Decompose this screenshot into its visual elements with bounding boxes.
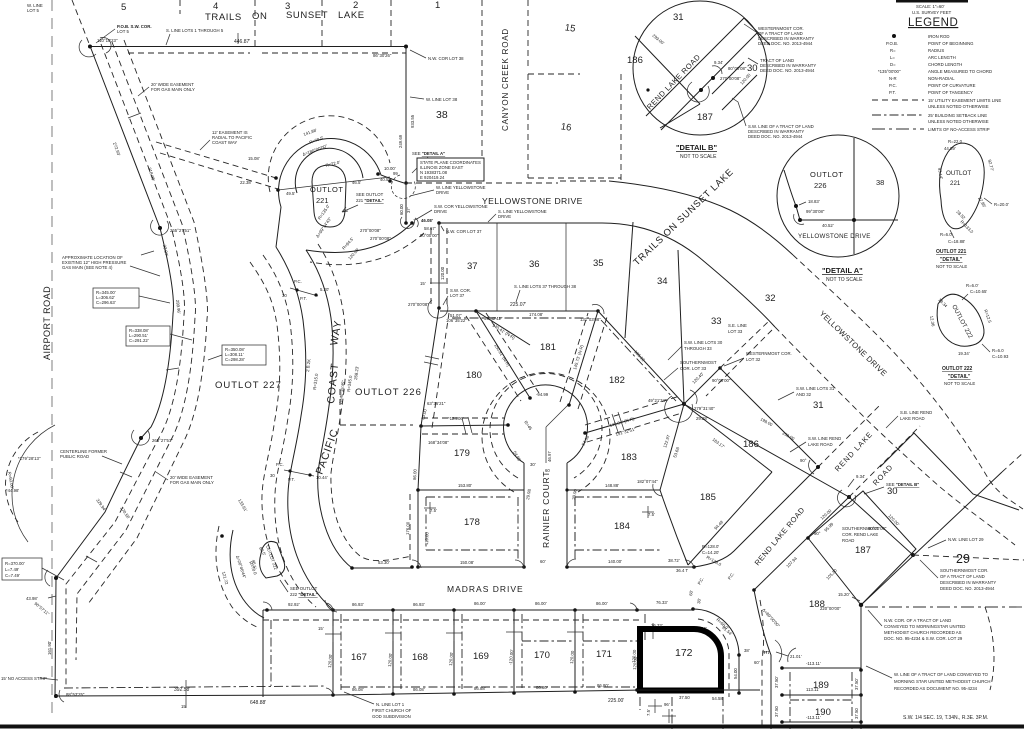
svg-text:P.O.B.: P.O.B. [886, 41, 898, 46]
svg-text:"DETAIL": "DETAIL" [940, 257, 963, 263]
svg-text:R=6.0: R=6.0 [992, 348, 1004, 353]
svg-text:40.52': 40.52' [380, 177, 392, 182]
svg-text:86.08': 86.08' [413, 687, 425, 692]
svg-text:15': 15' [318, 626, 324, 631]
svg-text:R=: R= [890, 48, 896, 53]
svg-text:OUTLOT 222: OUTLOT 222 [942, 366, 973, 372]
svg-text:86°30'26": 86°30'26" [373, 53, 392, 58]
svg-text:221 "DETAIL": 221 "DETAIL" [356, 198, 384, 203]
svg-text:30: 30 [887, 486, 898, 497]
svg-text:446.87': 446.87' [234, 39, 250, 45]
svg-text:S.W. LINE REND: S.W. LINE REND [808, 436, 841, 441]
svg-text:DRIVE: DRIVE [436, 190, 449, 195]
svg-text:FIRST CHURCH OF: FIRST CHURCH OF [372, 708, 412, 713]
svg-text:RADIUS: RADIUS [928, 48, 944, 53]
svg-text:46.97: 46.97 [547, 451, 552, 462]
svg-text:5.20': 5.20' [320, 287, 329, 292]
svg-text:OF A TRACT OF LAND: OF A TRACT OF LAND [940, 574, 985, 579]
svg-text:CHORD LENGTH: CHORD LENGTH [928, 62, 962, 67]
svg-text:86.93': 86.93' [413, 602, 425, 607]
svg-text:172: 172 [675, 647, 693, 659]
svg-text:RAINIER COURT: RAINIER COURT [541, 471, 551, 548]
svg-text:184: 184 [614, 521, 630, 532]
svg-text:392.58': 392.58' [174, 687, 190, 693]
svg-text:99°30'08": 99°30'08" [806, 209, 825, 214]
svg-text:P.C.: P.C. [889, 83, 897, 88]
svg-text:AND 32: AND 32 [796, 392, 812, 397]
svg-text:OUTLOT: OUTLOT [946, 170, 971, 177]
svg-text:92.92': 92.92' [288, 602, 300, 607]
svg-text:37.50: 37.50 [774, 706, 779, 717]
svg-text:R=128.0': R=128.0' [702, 544, 719, 549]
svg-text:225.00': 225.00' [608, 698, 624, 704]
svg-text:S.W. LINE LOTS 30: S.W. LINE LOTS 30 [684, 340, 723, 345]
svg-text:NOT TO SCALE: NOT TO SCALE [936, 264, 967, 269]
svg-text:N. LINE LOT 1: N. LINE LOT 1 [376, 702, 405, 707]
svg-text:60': 60' [754, 660, 760, 665]
svg-text:31: 31 [813, 400, 824, 411]
svg-text:*44.98': *44.98' [6, 488, 19, 493]
svg-text:179: 179 [454, 448, 470, 459]
svg-text:S.W. 1/4 SEC. 19, T.34N., R.3E: S.W. 1/4 SEC. 19, T.34N., R.3E. 3P.M. [903, 715, 988, 721]
svg-text:167: 167 [351, 652, 367, 663]
svg-text:N-R: N-R [889, 76, 897, 81]
svg-text:L=7.49': L=7.49' [5, 567, 19, 572]
svg-text:C=14.20': C=14.20' [702, 550, 719, 555]
svg-text:N.W. COR LOT 38: N.W. COR LOT 38 [428, 56, 464, 61]
svg-text:"DETAIL A": "DETAIL A" [822, 266, 863, 275]
svg-text:SOUTHERNMOST: SOUTHERNMOST [842, 526, 879, 531]
svg-text:181: 181 [540, 342, 556, 353]
svg-text:W. LINE OF A TRACT OF LAND CON: W. LINE OF A TRACT OF LAND CONVEYED TO [894, 672, 989, 677]
svg-text:ROAD: ROAD [842, 538, 854, 543]
svg-text:THROUGH 33: THROUGH 33 [684, 346, 712, 351]
svg-text:SOUTHERNMOST COR.: SOUTHERNMOST COR. [940, 568, 988, 573]
svg-text:C=10.65': C=10.65' [970, 289, 987, 294]
svg-text:37.50': 37.50' [854, 678, 859, 690]
svg-text:RECORDED AS DOCUMENT NO. 95-42: RECORDED AS DOCUMENT NO. 95-4234 [894, 686, 978, 691]
svg-text:36: 36 [529, 259, 540, 270]
svg-text:15': 15' [420, 281, 426, 286]
svg-text:86.08': 86.08' [352, 687, 364, 692]
svg-text:ANGLE MEASURED TO CHORD: ANGLE MEASURED TO CHORD [928, 69, 992, 74]
svg-text:YELLOWSTONE DRIVE: YELLOWSTONE DRIVE [482, 196, 583, 206]
svg-text:NOT TO SCALE: NOT TO SCALE [826, 277, 863, 283]
svg-text:113.11': 113.11' [806, 687, 820, 692]
svg-text:53.30': 53.30' [378, 560, 390, 565]
svg-text:TRAILS: TRAILS [205, 12, 242, 23]
svg-text:186: 186 [627, 55, 643, 66]
svg-text:P.C.: P.C. [276, 462, 284, 467]
svg-text:99: 99 [393, 171, 398, 176]
svg-text:7.5': 7.5' [648, 512, 655, 517]
svg-text:15.20': 15.20' [838, 592, 850, 597]
svg-text:90°00'00": 90°00'00" [712, 378, 731, 383]
svg-text:NOT TO SCALE: NOT TO SCALE [944, 381, 975, 386]
svg-text:P.T.: P.T. [889, 90, 896, 95]
svg-text:185: 185 [700, 492, 716, 503]
svg-text:171: 171 [596, 649, 612, 660]
svg-text:S.E. LINE: S.E. LINE [728, 323, 747, 328]
svg-text:170: 170 [534, 650, 550, 661]
svg-text:86.93': 86.93' [352, 602, 364, 607]
svg-text:40.52': 40.52' [822, 223, 834, 228]
svg-text:COR. REND LAKE: COR. REND LAKE [842, 532, 878, 537]
svg-text:279°31'40": 279°31'40" [694, 406, 715, 411]
svg-text:LOT 32: LOT 32 [746, 357, 761, 362]
svg-text:SCALE: 1"=60': SCALE: 1"=60' [916, 4, 945, 9]
svg-text:MORNING STAR UNITED METHODIST: MORNING STAR UNITED METHODIST CHURCH [894, 679, 991, 684]
svg-text:METHODIST CHURCH RECORDED AS: METHODIST CHURCH RECORDED AS [884, 630, 962, 635]
svg-text:C=291.22': C=291.22' [129, 338, 149, 343]
svg-text:221: 221 [950, 180, 961, 187]
svg-text:W. LINE LOT 38: W. LINE LOT 38 [426, 97, 458, 102]
svg-text:N.W. COR LOT 37: N.W. COR LOT 37 [446, 229, 482, 234]
svg-text:DRIVE: DRIVE [498, 214, 511, 219]
svg-text:AIRPORT ROAD: AIRPORT ROAD [42, 286, 52, 360]
svg-text:OUTLOT 226: OUTLOT 226 [355, 387, 422, 398]
svg-text:120.00: 120.00 [440, 266, 445, 280]
svg-text:R=370.00': R=370.00' [5, 561, 25, 566]
svg-text:22.38': 22.38' [240, 180, 252, 185]
svg-text:86.00': 86.00' [596, 601, 608, 606]
svg-text:90°: 90° [800, 458, 807, 463]
svg-text:U.S. SURVEY FEET: U.S. SURVEY FEET [912, 10, 952, 15]
svg-text:CONVEYED TO MORNINGSTAR UNITED: CONVEYED TO MORNINGSTAR UNITED [884, 624, 965, 629]
svg-text:30: 30 [747, 63, 758, 74]
svg-text:C=10.93: C=10.93 [992, 354, 1009, 359]
svg-text:25' BUILDING SETBACK LINE: 25' BUILDING SETBACK LINE [928, 113, 987, 118]
svg-text:S. LINE LOTS 37 THROUGH 38: S. LINE LOTS 37 THROUGH 38 [514, 284, 577, 289]
svg-text:-113.11': -113.11' [806, 661, 821, 666]
svg-text:15' NO ACCESS STRIP: 15' NO ACCESS STRIP [1, 676, 47, 681]
svg-text:15.08': 15.08' [248, 156, 260, 161]
svg-text:169: 169 [473, 651, 489, 662]
svg-text:IRON ROD: IRON ROD [928, 34, 950, 39]
svg-text:86.00': 86.00' [535, 601, 547, 606]
svg-text:182°07'44": 182°07'44" [637, 479, 658, 484]
svg-text:P.T.: P.T. [300, 296, 307, 301]
svg-text:LOT 5: LOT 5 [117, 29, 129, 34]
svg-text:60': 60' [688, 590, 694, 597]
svg-text:"DETAIL B": "DETAIL B" [676, 143, 717, 152]
svg-text:270°00'08": 270°00'08" [408, 302, 429, 307]
svg-text:46.5': 46.5' [352, 180, 361, 185]
svg-text:R=22.0: R=22.0 [948, 139, 963, 144]
svg-text:P.T.: P.T. [764, 650, 771, 655]
svg-text:LOT 37: LOT 37 [450, 293, 465, 298]
svg-text:7.5': 7.5' [430, 508, 437, 513]
svg-text:186: 186 [743, 439, 759, 450]
svg-text:63°36'21": 63°36'21" [427, 401, 446, 406]
svg-text:C=296.63': C=296.63' [96, 300, 116, 305]
svg-text:36.4 T: 36.4 T [676, 568, 688, 573]
svg-text:DEED DOC. NO. 2013-4944: DEED DOC. NO. 2013-4944 [760, 68, 815, 73]
svg-text:UNLESS NOTED OTHERWISE: UNLESS NOTED OTHERWISE [928, 104, 989, 109]
svg-text:15: 15 [181, 704, 186, 709]
svg-text:5: 5 [121, 2, 126, 13]
svg-text:86.00': 86.00' [474, 601, 486, 606]
svg-text:76.33': 76.33' [651, 623, 663, 628]
svg-text:168: 168 [412, 652, 428, 663]
svg-text:"DETAIL": "DETAIL" [948, 374, 971, 380]
svg-text:OUTLOT 221: OUTLOT 221 [936, 249, 967, 255]
svg-text:WESTERNMOST COR.: WESTERNMOST COR. [746, 351, 792, 356]
svg-text:31: 31 [673, 12, 684, 23]
svg-text:110.00: 110.00 [424, 531, 429, 545]
svg-text:153.80': 153.80' [458, 483, 472, 488]
svg-text:76.33': 76.33' [656, 600, 668, 605]
svg-text:265°27'51": 265°27'51" [170, 228, 191, 233]
svg-text:178: 178 [464, 517, 480, 528]
svg-text:187: 187 [697, 112, 713, 123]
svg-text:30: 30 [270, 473, 275, 478]
svg-text:LAKE: LAKE [338, 10, 365, 21]
svg-text:270°00'08": 270°00'08" [720, 76, 741, 81]
svg-text:90°00'00": 90°00'00" [420, 233, 439, 238]
svg-text:LAKE ROAD: LAKE ROAD [808, 442, 833, 447]
svg-text:DEED DOC. NO. 2013-4944: DEED DOC. NO. 2013-4944 [748, 134, 803, 139]
svg-text:C=18.88': C=18.88' [948, 239, 965, 244]
svg-text:16: 16 [560, 121, 572, 133]
svg-text:86.80': 86.80' [536, 685, 548, 690]
svg-text:SOUTHERNMOST: SOUTHERNMOST [680, 360, 717, 365]
svg-text:R=6.0': R=6.0' [966, 283, 979, 288]
svg-text:161.90': 161.90' [47, 641, 52, 655]
svg-text:-113.11': -113.11' [806, 715, 821, 720]
svg-text:LAKE ROAD: LAKE ROAD [900, 416, 925, 421]
svg-text:10.44': 10.44' [316, 475, 328, 480]
svg-text:174.08': 174.08' [529, 312, 543, 317]
svg-text:110°10'23": 110°10'23" [97, 38, 118, 43]
svg-text:168°34'08": 168°34'08" [428, 440, 449, 445]
svg-text:FOR GAS MAIN ONLY: FOR GAS MAIN ONLY [151, 87, 195, 92]
svg-text:38: 38 [436, 109, 448, 121]
svg-text:29: 29 [956, 552, 970, 566]
svg-text:180: 180 [466, 370, 482, 381]
svg-text:ARC LENGTH: ARC LENGTH [928, 55, 956, 60]
svg-text:38': 38' [744, 648, 750, 653]
svg-text:1: 1 [435, 0, 440, 11]
svg-text:D=: D= [890, 62, 896, 67]
svg-text:S. LINE LOTS 1 THROUGH 5: S. LINE LOTS 1 THROUGH 5 [166, 28, 224, 33]
svg-text:R=20.0': R=20.0' [994, 202, 1009, 207]
svg-text:183: 183 [621, 452, 637, 463]
svg-text:221: 221 [316, 196, 329, 205]
svg-text:226: 226 [814, 181, 827, 190]
svg-text:YELLOWSTONE DRIVE: YELLOWSTONE DRIVE [798, 233, 871, 240]
svg-text:GOD SUBDIVISION: GOD SUBDIVISION [372, 714, 411, 719]
svg-text:37': 37' [406, 207, 411, 213]
svg-text:FOR GAS MAIN ONLY: FOR GAS MAIN ONLY [170, 480, 214, 485]
svg-text:GAS MAIN (SEE NOTE 4): GAS MAIN (SEE NOTE 4) [62, 265, 113, 270]
svg-text:37.50: 37.50 [854, 708, 859, 719]
svg-text:LOT 5: LOT 5 [27, 8, 39, 13]
svg-text:54.00: 54.00 [733, 668, 738, 679]
svg-text:PUBLIC ROAD: PUBLIC ROAD [60, 454, 89, 459]
svg-text:4: 4 [213, 1, 218, 12]
svg-text:58.67': 58.67' [424, 226, 436, 231]
svg-text:182: 182 [609, 375, 625, 386]
svg-text:270°00'08": 270°00'08" [370, 236, 391, 241]
svg-text:34: 34 [657, 276, 668, 287]
svg-text:270°00'08": 270°00'08" [360, 228, 381, 233]
svg-text:150.08': 150.08' [460, 560, 474, 565]
svg-text:30: 30 [282, 293, 287, 298]
svg-text:9.34': 9.34' [714, 60, 723, 65]
svg-text:P.T.: P.T. [288, 477, 295, 482]
svg-text:15: 15 [564, 22, 576, 34]
svg-text:OUTLOT: OUTLOT [310, 185, 343, 194]
svg-text:80°00'08": 80°00'08" [728, 66, 747, 71]
svg-text:C=298.28': C=298.28' [225, 357, 245, 362]
svg-text:35: 35 [593, 258, 604, 269]
svg-text:SEE OUTLOT: SEE OUTLOT [290, 586, 318, 591]
svg-text:COAST WAY: COAST WAY [212, 140, 237, 145]
svg-text:265°27'51": 265°27'51" [152, 438, 173, 443]
svg-text:SEE "DETAIL B": SEE "DETAIL B" [886, 482, 919, 487]
svg-text:P.C.: P.C. [294, 279, 302, 284]
svg-text:N.W. COR. OF A TRACT OF LAND: N.W. COR. OF A TRACT OF LAND [884, 618, 951, 623]
svg-text:44.89': 44.89' [944, 146, 956, 151]
svg-text:38.72': 38.72' [668, 558, 680, 563]
svg-text:54.58: 54.58 [712, 696, 723, 701]
svg-text:148.88': 148.88' [605, 483, 619, 488]
svg-text:60.00: 60.00 [399, 204, 404, 215]
svg-text:86.00: 86.00 [412, 468, 418, 480]
svg-text:N.W. LINE LOT 29: N.W. LINE LOT 29 [948, 537, 984, 542]
svg-text:ON: ON [252, 11, 267, 22]
svg-text:15' UTILITY EASEMENT LIMITS LI: 15' UTILITY EASEMENT LIMITS LINE [928, 98, 1001, 103]
svg-text:C=7.49': C=7.49' [5, 573, 20, 578]
svg-text:E 920419.24: E 920419.24 [420, 175, 445, 180]
svg-text:222 "DETAIL": 222 "DETAIL" [290, 592, 318, 597]
svg-text:POINT OF TANGENCY: POINT OF TANGENCY [928, 90, 973, 95]
svg-text:DRIVE: DRIVE [434, 209, 447, 214]
svg-text:POINT OF BEGINNING: POINT OF BEGINNING [928, 41, 974, 46]
svg-text:99°42'42": 99°42'42" [484, 316, 503, 321]
svg-text:UNLESS NOTED OTHERWISE: UNLESS NOTED OTHERWISE [928, 119, 989, 124]
svg-text:37.50': 37.50' [774, 676, 779, 688]
svg-text:POINT OF CURVATURE: POINT OF CURVATURE [928, 83, 976, 88]
svg-text:LEGEND: LEGEND [908, 17, 958, 29]
svg-text:96': 96' [664, 702, 670, 707]
svg-text:-94.99: -94.99 [536, 392, 549, 397]
svg-text:37: 37 [467, 261, 478, 272]
svg-text:OUTLOT 227: OUTLOT 227 [215, 380, 282, 391]
svg-text:90°: 90° [814, 531, 821, 536]
svg-text:225.07': 225.07' [510, 302, 526, 308]
svg-text:106°35'22": 106°35'22" [446, 318, 467, 323]
svg-text:7.5': 7.5' [646, 709, 651, 716]
svg-text:648.88': 648.88' [250, 700, 266, 706]
svg-text:NOT TO SCALE: NOT TO SCALE [680, 154, 717, 160]
svg-text:18.83': 18.83' [808, 199, 820, 204]
svg-text:S.W. LINE LOTS 31: S.W. LINE LOTS 31 [796, 386, 835, 391]
svg-text:38: 38 [876, 178, 884, 187]
svg-text:37.50: 37.50 [679, 695, 690, 700]
svg-text:140.00': 140.00' [608, 559, 622, 564]
svg-text:CANYON CREEK ROAD: CANYON CREEK ROAD [501, 28, 510, 131]
svg-text:187: 187 [855, 545, 871, 556]
svg-text:30': 30' [696, 598, 702, 605]
svg-text:DEED DOC. NO. 2013-4944: DEED DOC. NO. 2013-4944 [940, 586, 995, 591]
svg-text:*124.00': *124.00' [448, 416, 464, 421]
svg-text:LIMITS OF NO-ACCESS STRIP: LIMITS OF NO-ACCESS STRIP [928, 127, 990, 132]
svg-text:249.69: 249.69 [398, 134, 403, 148]
svg-text:LOT 33: LOT 33 [728, 329, 743, 334]
svg-text:21.01': 21.01' [790, 654, 802, 659]
svg-text:220°00'00": 220°00'00" [820, 606, 841, 611]
svg-text:46.08': 46.08' [421, 218, 433, 223]
svg-text:19.34': 19.34' [958, 351, 970, 356]
svg-text:33: 33 [711, 316, 722, 327]
svg-text:R=6.0': R=6.0' [940, 232, 953, 237]
svg-text:NON-RADIAL: NON-RADIAL [928, 76, 955, 81]
svg-text:*179°28'13": *179°28'13" [18, 456, 41, 461]
svg-text:933.55: 933.55 [410, 114, 415, 128]
svg-text:60': 60' [540, 559, 546, 564]
svg-text:DEED DOC. NO. 2013-4944: DEED DOC. NO. 2013-4944 [758, 41, 813, 46]
svg-text:MADRAS DRIVE: MADRAS DRIVE [447, 584, 524, 594]
svg-text:SEE OUTLOT: SEE OUTLOT [356, 192, 384, 197]
svg-text:COR. LOT 33: COR. LOT 33 [680, 366, 707, 371]
svg-text:9.34': 9.34' [856, 474, 865, 479]
svg-text:32: 32 [765, 293, 776, 304]
svg-text:S.B. LINE REND: S.B. LINE REND [900, 410, 932, 415]
svg-text:OUTLOT: OUTLOT [810, 170, 843, 179]
svg-text:60: 60 [545, 468, 550, 473]
svg-text:30': 30' [530, 462, 536, 467]
svg-text:L=: L= [890, 55, 895, 60]
svg-text:SEE "DETAIL A": SEE "DETAIL A" [412, 151, 445, 156]
svg-text:*135°00'00": *135°00'00" [878, 69, 901, 74]
svg-text:DOC. NO. 95-4234 & S.W. COR. L: DOC. NO. 95-4234 & S.W. COR. LOT 29 [884, 636, 963, 641]
svg-text:49.5': 49.5' [286, 191, 295, 196]
svg-text:DESCRIBED IN WARRANTY: DESCRIBED IN WARRANTY [940, 580, 996, 585]
